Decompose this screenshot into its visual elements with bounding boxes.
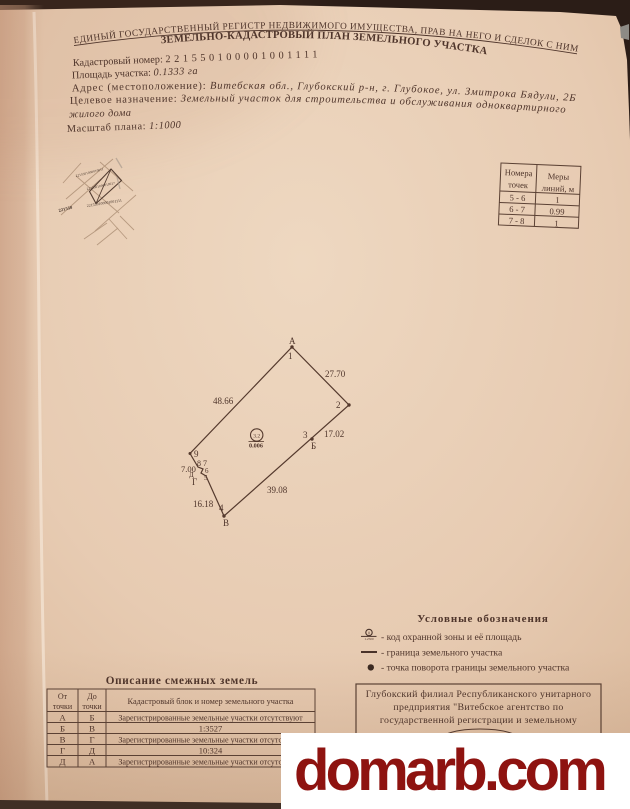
svg-text:2: 2 (336, 400, 341, 410)
svg-text:0.99: 0.99 (549, 206, 564, 217)
svg-text:10:324: 10:324 (199, 746, 223, 756)
svg-text:9: 9 (194, 449, 199, 459)
svg-text:5 - 6: 5 - 6 (509, 192, 526, 203)
svg-text:1: 1 (555, 195, 560, 205)
svg-text:Кадастровый блок и номер земел: Кадастровый блок и номер земельного учас… (128, 697, 294, 706)
svg-text:3: 3 (303, 430, 308, 440)
svg-text:Д: Д (89, 746, 95, 756)
svg-text:Зарегистрированные земельные у: Зарегистрированные земельные участки отс… (118, 714, 303, 723)
svg-text:точек: точек (508, 179, 529, 190)
svg-text:Условные обозначения: Условные обозначения (417, 613, 549, 625)
svg-text:Г: Г (192, 477, 197, 487)
svg-text:- точка поворота границы земел: - точка поворота границы земельного учас… (381, 663, 570, 674)
svg-text:линий, м: линий, м (542, 183, 575, 194)
svg-text:221550: 221550 (58, 205, 73, 213)
svg-text:точки: точки (82, 702, 102, 711)
svg-text:4: 4 (219, 503, 224, 513)
svg-text:жилого дома: жилого дома (69, 108, 132, 121)
svg-text:Б: Б (60, 724, 65, 734)
svg-text:Б: Б (311, 441, 316, 451)
svg-text:1: 1 (554, 218, 559, 228)
svg-text:1: 1 (288, 351, 293, 361)
svg-text:До: До (87, 692, 96, 701)
svg-text:Г: Г (89, 735, 94, 745)
svg-text:27.70: 27.70 (325, 369, 346, 379)
svg-text:предприятия "Витебское агентст: предприятия "Витебское агентство по (393, 702, 563, 713)
svg-text:государственной регистрации и: государственной регистрации и земельному (380, 715, 577, 726)
svg-text:1:3527: 1:3527 (199, 724, 223, 734)
svg-text:Зарегистрированные земельные у: Зарегистрированные земельные участки отс… (118, 758, 303, 767)
svg-text:6 - 7: 6 - 7 (509, 204, 526, 215)
svg-text:Зарегистрированные земельные у: Зарегистрированные земельные участки отс… (118, 736, 303, 745)
svg-text:48.66: 48.66 (213, 396, 234, 406)
svg-text:5: 5 (204, 474, 208, 482)
svg-text:В: В (60, 735, 66, 745)
svg-text:Номера: Номера (505, 167, 533, 178)
svg-text:Меры: Меры (548, 171, 570, 182)
svg-text:В: В (89, 724, 95, 734)
svg-text:В: В (223, 518, 229, 528)
svg-text:17.02: 17.02 (324, 429, 344, 439)
svg-text:1.2500: 1.2500 (364, 637, 374, 641)
svg-text:7 - 8: 7 - 8 (509, 215, 525, 226)
svg-text:Глубокский филиал Республиканс: Глубокский филиал Республиканского унита… (366, 689, 592, 700)
svg-text:Масштаб плана: 1:1000: Масштаб плана: 1:1000 (67, 120, 182, 135)
svg-text:3.2: 3.2 (253, 434, 260, 440)
svg-text:16.18: 16.18 (193, 499, 214, 509)
svg-text:Г: Г (60, 746, 65, 756)
svg-text:точки: точки (53, 702, 73, 711)
svg-text:А: А (59, 713, 66, 723)
svg-text:А: А (89, 757, 96, 767)
svg-text:Б: Б (89, 713, 94, 723)
svg-text:2215501000010011: 2215501000010011 (75, 167, 104, 178)
svg-text:А: А (289, 336, 296, 346)
svg-text:0.006: 0.006 (249, 443, 263, 450)
svg-text:39.08: 39.08 (267, 485, 288, 495)
svg-text:Д: Д (59, 757, 65, 767)
svg-text:Описание смежных земель: Описание смежных земель (106, 675, 259, 687)
svg-text:- код охранной зоны и её площа: - код охранной зоны и её площадь (381, 632, 522, 643)
svg-text:0: 0 (368, 631, 370, 636)
svg-text:- граница земельного участка: - граница земельного участка (381, 648, 503, 659)
svg-text:От: От (58, 692, 68, 701)
